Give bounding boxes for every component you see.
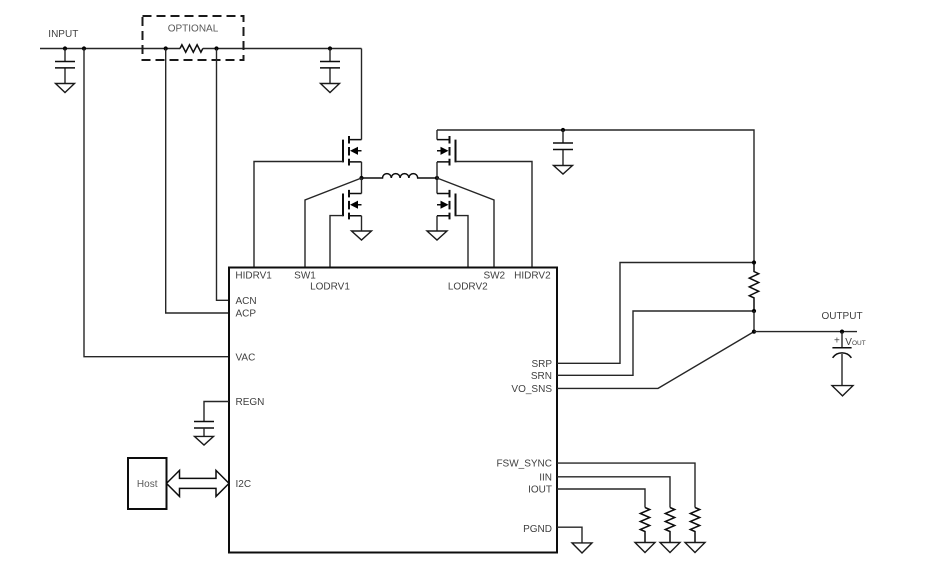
- svg-text:I2C: I2C: [236, 479, 252, 490]
- svg-text:LODRV1: LODRV1: [310, 282, 350, 293]
- svg-text:INPUT: INPUT: [48, 29, 78, 40]
- svg-text:OUTPUT: OUTPUT: [821, 311, 862, 322]
- svg-text:SRP: SRP: [531, 359, 552, 370]
- svg-text:ACN: ACN: [236, 296, 257, 307]
- svg-text:SW1: SW1: [294, 271, 316, 282]
- svg-text:Host: Host: [137, 479, 158, 490]
- svg-text:LODRV2: LODRV2: [448, 282, 488, 293]
- svg-text:VAC: VAC: [236, 352, 256, 363]
- svg-text:ACP: ACP: [236, 309, 257, 320]
- svg-text:HIDRV1: HIDRV1: [235, 271, 272, 282]
- svg-text:OPTIONAL: OPTIONAL: [168, 24, 219, 35]
- svg-text:VO_SNS: VO_SNS: [511, 384, 552, 395]
- svg-text:+: +: [834, 336, 840, 347]
- svg-text:SW2: SW2: [483, 271, 505, 282]
- svg-text:IOUT: IOUT: [528, 485, 552, 496]
- svg-text:SRN: SRN: [531, 371, 552, 382]
- svg-text:HIDRV2: HIDRV2: [514, 271, 551, 282]
- svg-text:FSW_SYNC: FSW_SYNC: [496, 459, 552, 470]
- svg-text:PGND: PGND: [523, 524, 552, 535]
- svg-text:REGN: REGN: [236, 397, 265, 408]
- svg-text:IIN: IIN: [539, 472, 552, 483]
